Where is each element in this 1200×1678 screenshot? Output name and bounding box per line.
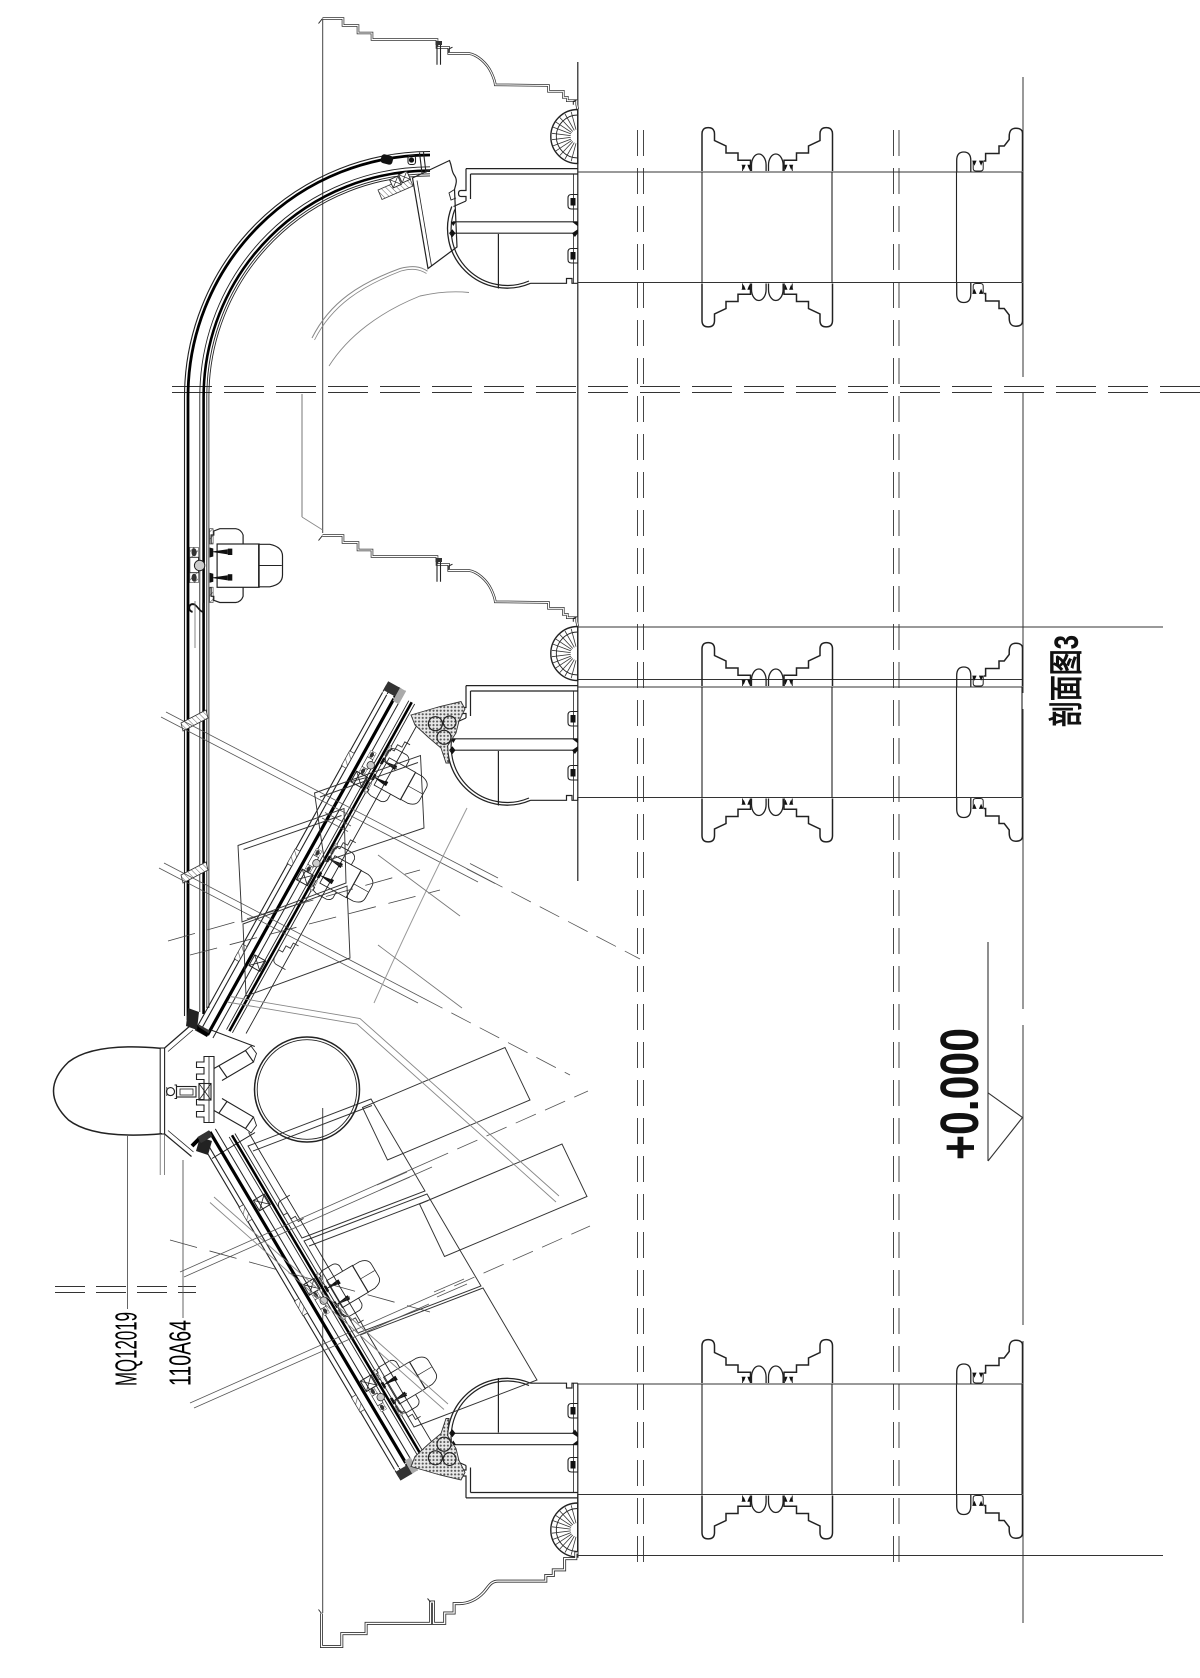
svg-text:+0.000: +0.000: [930, 1028, 990, 1160]
svg-text:剖面图3: 剖面图3: [1048, 635, 1086, 727]
svg-text:110A64: 110A64: [163, 1320, 198, 1386]
svg-text:MQ12019: MQ12019: [109, 1312, 144, 1386]
svg-text:2: 2: [184, 602, 209, 614]
